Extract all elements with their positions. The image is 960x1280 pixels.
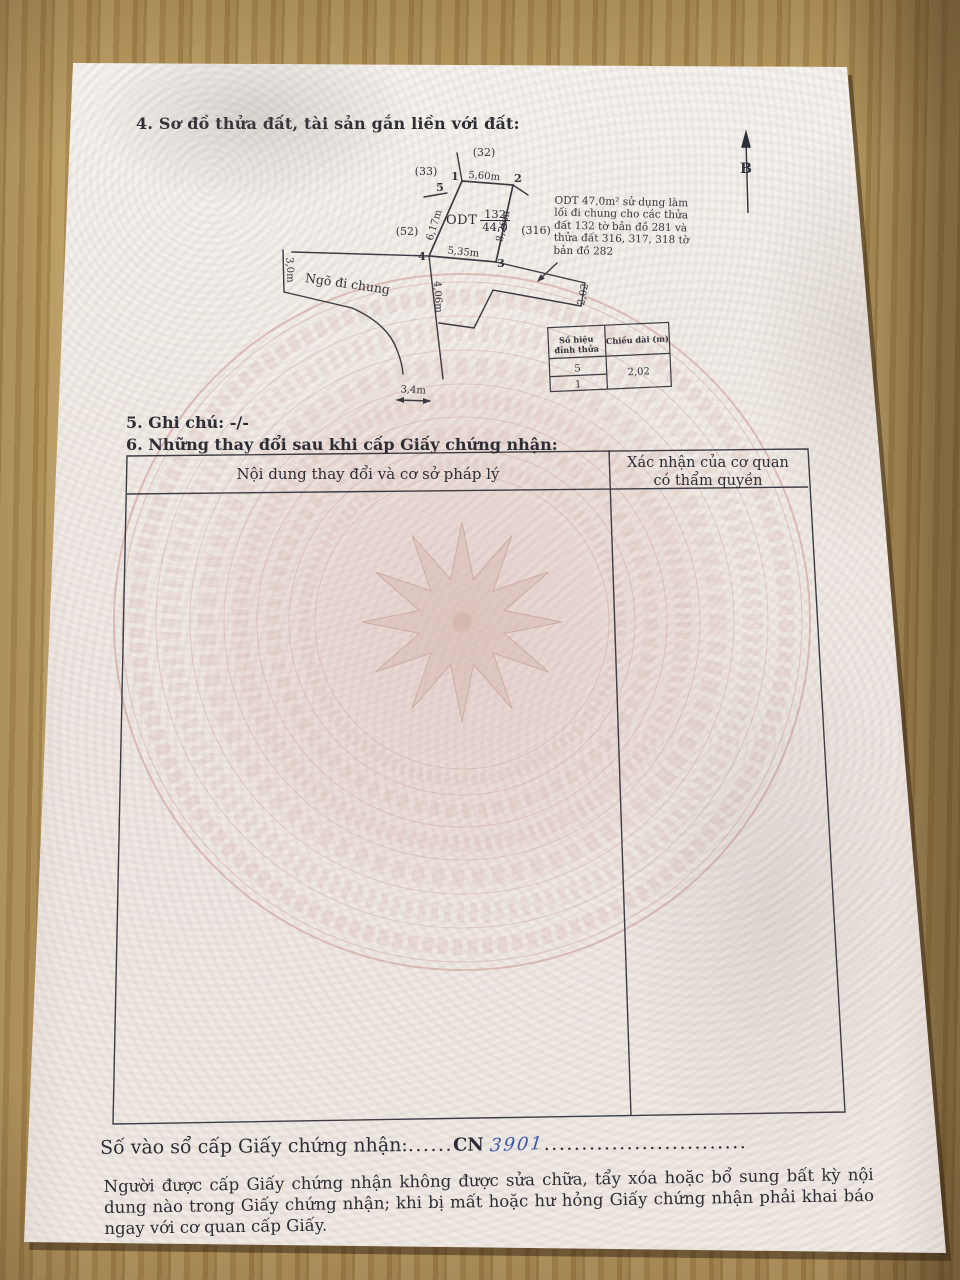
registry-label: Số vào sổ cấp Giấy chứng nhận: [100, 1134, 408, 1159]
vertex-4: 4 [418, 250, 426, 263]
section5-note: 5. Ghi chú: -/- [126, 413, 249, 432]
vertex-2: 2 [514, 172, 522, 185]
length-table-row2-vertex: 1 [575, 379, 582, 390]
alley-top-boundary [292, 252, 429, 256]
edge-left-length: 6,17m [425, 208, 445, 242]
common-path-strip [439, 262, 585, 328]
vertex-5: 5 [436, 181, 444, 194]
sketch-labels: (32) (33) (52) (316) 1 2 3 4 5 5,60m 8,2… [283, 146, 591, 397]
parcel-label: ODT 132 44,0 [446, 208, 510, 233]
parcel-map-number: 132 [484, 208, 506, 220]
alley-bottom-boundary [284, 292, 403, 374]
neighbor-33: (33) [415, 165, 438, 178]
linework-layer: B (32) (33) (52) (316) 1 [0, 0, 960, 1280]
length-table-row1-vertex: 5 [574, 363, 581, 374]
registry-dots-before: ...... [408, 1134, 453, 1156]
footer-warning-note: Người được cấp Giấy chứng nhận không đượ… [104, 1164, 875, 1239]
length-table-value: 2,02 [627, 366, 650, 378]
changes-table-col2-header-line1: Xác nhận của cơ quan [613, 455, 803, 473]
changes-table [113, 449, 845, 1124]
strip-width: 2,02 [576, 283, 591, 307]
neighbor-52: (52) [396, 225, 419, 238]
alley-width: 3,0m [283, 257, 295, 283]
alley-left-cap [283, 250, 284, 292]
length-table: Số hiệu đỉnh thửa Chiều dài (m) 5 1 2,02 [548, 322, 672, 391]
registry-code-printed: CN [453, 1134, 484, 1155]
neighbor-316: (316) [521, 224, 551, 237]
vertex-1: 1 [451, 170, 459, 183]
leg-length: 4,06m [431, 281, 444, 314]
changes-table-col2-header-line2: có thẩm quyền [613, 473, 803, 491]
registry-dots-after: ........................... [544, 1131, 748, 1155]
edge-top-length: 5,60m [468, 170, 501, 183]
length-table-col1-header-line2: đỉnh thửa [554, 343, 600, 355]
common-path-note: ODT 47,0m² sử dụng làm lối đi chung cho … [553, 195, 690, 260]
section6-title: 6. Những thay đổi sau khi cấp Giấy chứng… [126, 435, 558, 454]
vertex-3: 3 [497, 257, 505, 270]
north-arrow: B [740, 132, 752, 213]
north-label: B [740, 161, 752, 177]
changes-table-col1-header: Nội dung thay đổi và cơ sở pháp lý [153, 466, 583, 484]
path-leg-right-edge [429, 256, 443, 379]
registry-code-handwritten: 3901 [489, 1133, 545, 1156]
section4-title: 4. Sơ đồ thửa đất, tài sản gắn liền với … [136, 114, 520, 133]
length-table-col2-header: Chiều dài (m) [606, 333, 669, 346]
alley-label: Ngõ đi chung [304, 270, 391, 297]
parcel-use-code: ODT [446, 213, 477, 228]
opening-width: 3,4m [400, 384, 426, 396]
changes-table-col2-header: Xác nhận của cơ quan có thẩm quyền [613, 455, 803, 490]
parcel-area: 44,0 [480, 220, 510, 233]
neighbor-32: (32) [473, 146, 496, 159]
photo-of-land-certificate: B (32) (33) (52) (316) 1 [0, 0, 960, 1280]
boundary-ext-v2 [513, 185, 528, 195]
